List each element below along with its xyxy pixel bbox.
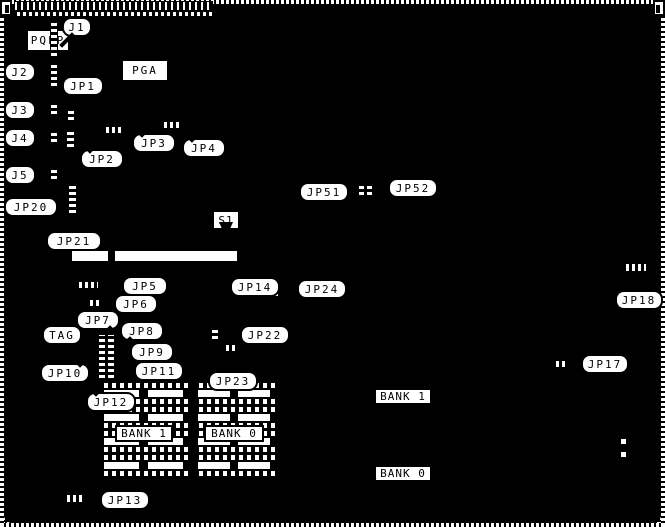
jp8-header-b xyxy=(107,334,115,382)
callout-jp8-text: JP8 xyxy=(129,325,155,338)
bank0-dip-socket-1-cavity-a xyxy=(198,390,230,397)
bank-label-bank1-dip: BANK 1 xyxy=(115,425,173,442)
bank1-dip-socket-4-cavity-b xyxy=(148,462,183,469)
callout-jp3: JP3 xyxy=(132,133,176,153)
callout-jp13-text: JP13 xyxy=(108,494,143,507)
jp5-jumper xyxy=(75,281,99,289)
bank-label-bank1-simm: BANK 1 xyxy=(374,388,432,405)
bank-label-bank0-dip-text: BANK 0 xyxy=(211,427,257,440)
motherboard-jumper-diagram: MH1390 PGA BIOS KBD J1J2J3J4J5JP1JP2JP3J… xyxy=(0,0,665,527)
bank-label-bank0-simm: BANK 0 xyxy=(374,465,432,482)
bank0-dip-socket-2-body xyxy=(195,412,275,423)
callout-jp11: JP11 xyxy=(134,361,184,381)
callout-jp22-text: JP22 xyxy=(248,329,283,342)
j3-header xyxy=(50,101,58,118)
callout-jp3-text: JP3 xyxy=(141,137,167,150)
callout-jp1: JP1 xyxy=(62,76,104,96)
callout-j5-text: J5 xyxy=(11,169,28,182)
callout-jp13: JP13 xyxy=(100,490,150,510)
bank0-dip-socket-2-cavity-a xyxy=(198,414,230,421)
jp13-jumper xyxy=(63,494,85,503)
jp51-jumper-a xyxy=(358,182,365,199)
din-pin-block-1 xyxy=(619,437,628,446)
simm-socket-8-clip-left-hook xyxy=(5,5,9,13)
jp23-jumper xyxy=(222,344,238,352)
bank0-dip-socket-4 xyxy=(195,455,275,476)
callout-jp51-text: JP51 xyxy=(307,186,342,199)
callout-jp11-text: JP11 xyxy=(142,365,177,378)
callout-jp9: JP9 xyxy=(130,342,174,362)
callout-jp4: JP4 xyxy=(182,138,226,158)
jp18-jumper xyxy=(622,263,647,272)
callout-jp6-text: JP6 xyxy=(123,298,149,311)
bank1-dip-socket-3-pins-bottom xyxy=(100,447,188,452)
bank-label-bank0-simm-text: BANK 0 xyxy=(380,467,426,480)
s1-slot-segment-1 xyxy=(72,251,108,261)
callout-jp6: JP6 xyxy=(114,294,158,314)
callout-jp24-text: JP24 xyxy=(305,283,340,296)
jp2-jumper xyxy=(66,131,75,151)
callout-j4: J4 xyxy=(4,128,36,148)
callout-jp10: JP10 xyxy=(40,363,90,383)
callout-jp23: JP23 xyxy=(208,371,258,391)
bank0-dip-socket-4-cavity-b xyxy=(238,462,270,469)
callout-jp24: JP24 xyxy=(297,279,347,299)
callout-jp8: JP8 xyxy=(120,321,164,341)
callout-j4-text: J4 xyxy=(11,132,28,145)
jp4-jumper xyxy=(160,121,180,129)
callout-jp20: JP20 xyxy=(4,197,58,217)
callout-jp20-text: JP20 xyxy=(14,201,49,214)
callout-jp1-text: JP1 xyxy=(70,80,96,93)
simm-socket-8-clip-right-hook xyxy=(656,5,660,13)
jp6-jumper xyxy=(86,299,100,307)
bank0-dip-socket-4-cavity-a xyxy=(198,462,230,469)
jp8-header-a xyxy=(98,334,106,382)
bank1-dip-socket-2-cavity-a xyxy=(104,414,139,421)
jp3-jumper xyxy=(102,126,122,134)
callout-j1: J1 xyxy=(62,17,92,37)
callout-jp4-text: JP4 xyxy=(191,142,217,155)
j1-header xyxy=(50,22,58,60)
callout-jp14-text: JP14 xyxy=(238,281,273,294)
callout-jp5: JP5 xyxy=(122,276,168,296)
bank1-dip-socket-2-cavity-b xyxy=(148,414,183,421)
bank1-dip-socket-4-cavity-a xyxy=(104,462,139,469)
callout-jp51: JP51 xyxy=(299,182,349,202)
bank0-dip-socket-1-pins-bottom xyxy=(195,399,275,404)
jp20-header xyxy=(68,183,77,217)
callout-jp2-text: JP2 xyxy=(89,153,115,166)
callout-jp23-text: JP23 xyxy=(216,375,251,388)
callout-j3: J3 xyxy=(4,100,36,120)
j2-header xyxy=(50,64,58,90)
jp22-jumper xyxy=(211,328,219,343)
callout-tag: TAG xyxy=(42,325,82,345)
callout-jp5-text: JP5 xyxy=(132,280,158,293)
bank1-dip-socket-4-body xyxy=(100,460,188,471)
callout-jp12: JP12 xyxy=(86,392,136,412)
jp17-jumper xyxy=(552,360,567,368)
callout-jp12-text: JP12 xyxy=(94,396,129,409)
callout-s1: S1 xyxy=(212,210,240,230)
bank0-dip-socket-3-pins-bottom xyxy=(195,447,275,452)
bank-label-bank1-dip-text: BANK 1 xyxy=(121,427,167,440)
callout-jp21: JP21 xyxy=(46,231,102,251)
din-pin-block-2 xyxy=(619,450,628,459)
callout-j2: J2 xyxy=(4,62,36,82)
bank1-dip-socket-4 xyxy=(100,455,188,476)
j5-header xyxy=(50,166,58,183)
s1-slot-segment-2 xyxy=(115,251,237,261)
callout-jp17-text: JP17 xyxy=(588,358,623,371)
callout-jp14: JP14 xyxy=(230,277,280,297)
bank0-dip-socket-4-pins-bottom xyxy=(195,471,275,476)
callout-jp7-text: JP7 xyxy=(85,314,111,327)
callout-j2-text: J2 xyxy=(11,66,28,79)
bank1-dip-socket-2-body xyxy=(100,412,188,423)
callout-j5: J5 xyxy=(4,165,36,185)
jp1-jumper xyxy=(67,107,75,124)
callout-jp21-text: JP21 xyxy=(57,235,92,248)
callout-tag-text: TAG xyxy=(49,329,75,342)
bank0-dip-socket-1-cavity-b xyxy=(238,390,270,397)
jp51-jumper-b xyxy=(366,182,373,199)
callout-jp2: JP2 xyxy=(80,149,124,169)
callout-jp52-text: JP52 xyxy=(396,182,431,195)
callout-jp9-text: JP9 xyxy=(139,346,165,359)
callout-jp18: JP18 xyxy=(615,290,663,310)
callout-jp10-text: JP10 xyxy=(48,367,83,380)
simm-socket-8-contacts xyxy=(14,1,213,11)
jp24-plcc-chip-pins-bottom xyxy=(4,523,661,527)
bank1-dip-socket-4-pins-bottom xyxy=(100,471,188,476)
callout-jp7: JP7 xyxy=(76,310,120,330)
jp24-plcc-chip-pins-right xyxy=(661,4,665,523)
bank-label-bank0-dip: BANK 0 xyxy=(204,425,264,442)
callout-jp18-text: JP18 xyxy=(622,294,657,307)
callout-jp52: JP52 xyxy=(388,178,438,198)
bank0-dip-socket-2-cavity-b xyxy=(238,414,270,421)
simm-socket-8-pins xyxy=(14,12,213,16)
callout-jp22: JP22 xyxy=(240,325,290,345)
bank-label-bank1-simm-text: BANK 1 xyxy=(380,390,426,403)
callout-jp17: JP17 xyxy=(581,354,629,374)
bank1-dip-socket-1-cavity-b xyxy=(148,390,183,397)
bank0-dip-socket-4-body xyxy=(195,460,275,471)
j4-header xyxy=(50,129,58,146)
callout-j3-text: J3 xyxy=(11,104,28,117)
pga-label: PGA xyxy=(121,59,169,82)
